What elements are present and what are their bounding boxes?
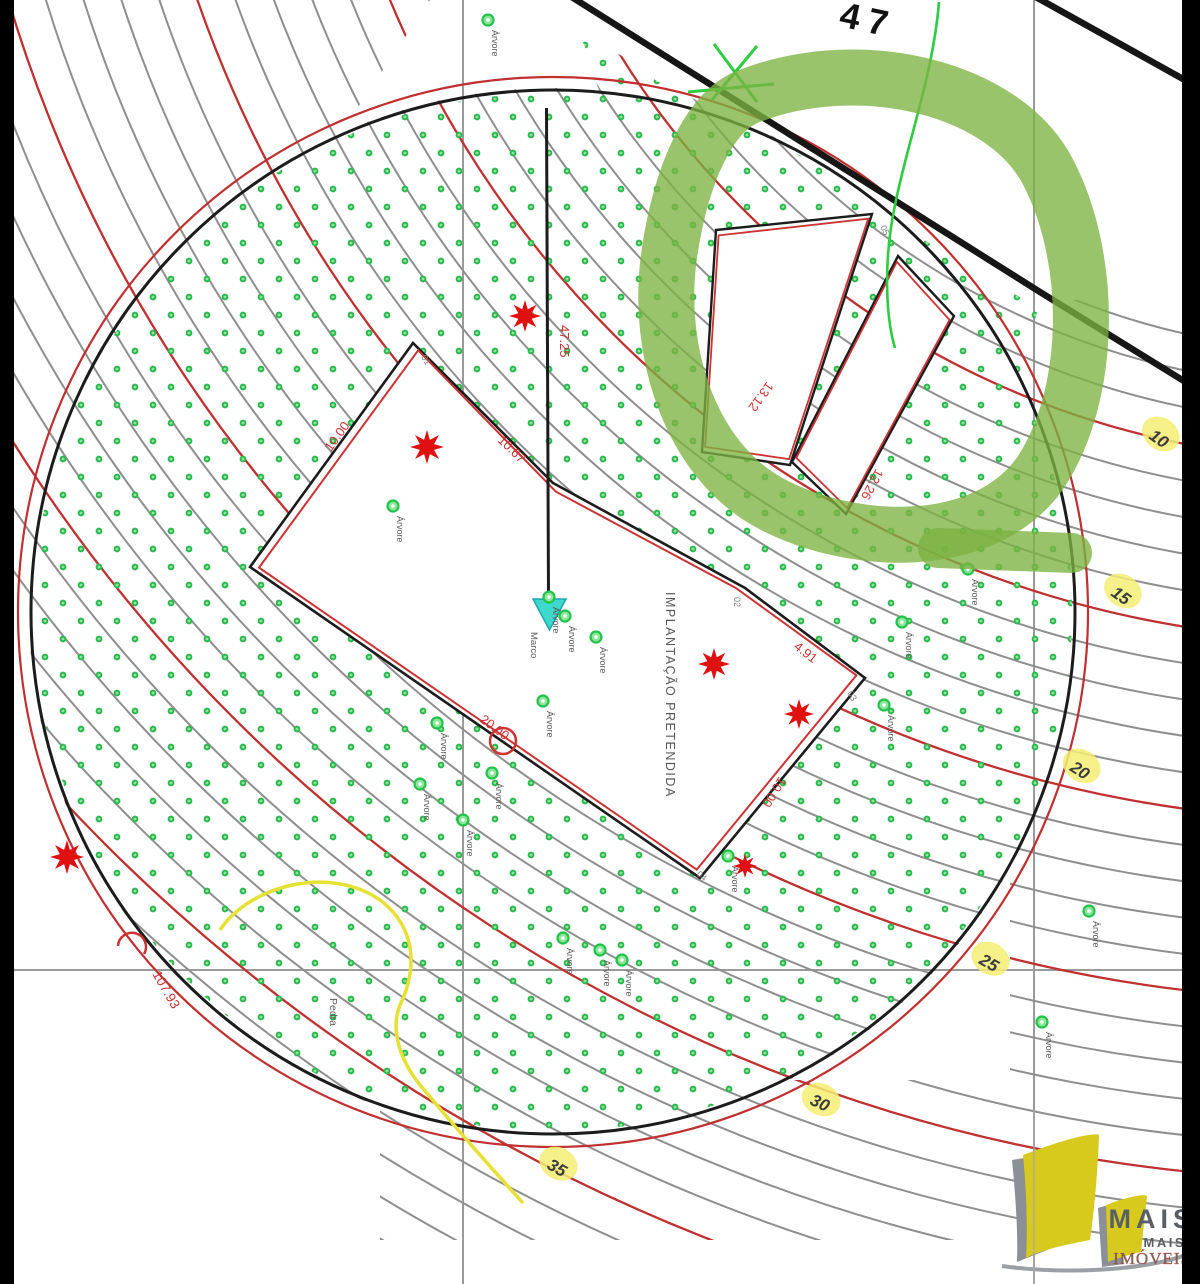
tree-label: Árvore bbox=[1044, 1032, 1054, 1059]
tree-symbol bbox=[483, 15, 494, 26]
tree-label: Árvore bbox=[439, 733, 449, 760]
tree-icon-core bbox=[598, 948, 602, 952]
tree-icon-core bbox=[541, 699, 545, 703]
tree-symbol bbox=[432, 718, 443, 729]
tree-icon-core bbox=[435, 721, 439, 725]
tree-label: Árvore bbox=[886, 715, 896, 742]
tree-symbol bbox=[538, 696, 549, 707]
building-label: IMPLANTAÇÃO PRETENDIDA bbox=[663, 592, 677, 798]
removed-tree-star bbox=[733, 854, 757, 878]
tree-symbol bbox=[591, 632, 602, 643]
removed-tree-star bbox=[410, 430, 444, 464]
logo-text-imoveis: IMÓVEIS bbox=[1113, 1249, 1191, 1268]
tree-symbol bbox=[415, 779, 426, 790]
tree-label: Árvore bbox=[565, 948, 575, 975]
tree-symbol bbox=[617, 955, 628, 966]
logo-text-brand-small: MAIS bbox=[1144, 1235, 1187, 1250]
removed-tree-star bbox=[50, 840, 84, 874]
tree-icon-core bbox=[418, 782, 422, 786]
dimension-label: 47.25 bbox=[557, 325, 572, 358]
tree-icon-core bbox=[620, 958, 624, 962]
tree-label: Árvore bbox=[730, 866, 740, 893]
survey-marker-label: Marco bbox=[528, 632, 539, 658]
corner-id-label: 02 bbox=[732, 597, 742, 607]
tree-label: Árvore bbox=[395, 516, 405, 543]
tree-icon-core bbox=[547, 595, 551, 599]
stone-area-label: Pedra bbox=[327, 998, 339, 1026]
tree-symbol bbox=[487, 768, 498, 779]
tree-label: Árvore bbox=[490, 30, 500, 57]
tree-icon-core bbox=[726, 854, 730, 858]
tree-label: Árvore bbox=[465, 830, 475, 857]
tree-label: Árvore bbox=[422, 794, 432, 821]
tree-label: Árvore bbox=[904, 632, 914, 659]
removed-tree-star bbox=[509, 300, 541, 332]
tree-icon-core bbox=[1087, 909, 1091, 913]
tree-symbol bbox=[458, 815, 469, 826]
tree-icon-core bbox=[391, 504, 395, 508]
tree-label: Árvore bbox=[624, 970, 634, 997]
tree-icon-core bbox=[490, 771, 494, 775]
left-border-bar bbox=[0, 0, 14, 1284]
tree-symbol bbox=[1037, 1017, 1048, 1028]
tree-symbol bbox=[560, 611, 571, 622]
tree-icon-core bbox=[1040, 1020, 1044, 1024]
highlighter-dash-annotation bbox=[938, 548, 1072, 553]
dimension-line bbox=[547, 108, 549, 600]
tree-symbol bbox=[388, 501, 399, 512]
tree-icon-core bbox=[561, 936, 565, 940]
tree-label: Árvore bbox=[567, 626, 577, 653]
tree-symbol bbox=[879, 700, 890, 711]
tree-symbol bbox=[1084, 906, 1095, 917]
tree-icon-core bbox=[563, 614, 567, 618]
tree-icon-core bbox=[594, 635, 598, 639]
tree-symbol bbox=[723, 851, 734, 862]
site-plan-drawing: ÁrvoreÁrvoreÁrvoreÁrvoreÁrvoreÁrvoreÁrvo… bbox=[0, 0, 1200, 1284]
tree-label: Árvore bbox=[545, 711, 555, 738]
tree-label: Árvore bbox=[494, 783, 504, 810]
tree-symbol bbox=[595, 945, 606, 956]
tree-label: Árvore bbox=[1091, 921, 1101, 948]
site-plan-document: ÁrvoreÁrvoreÁrvoreÁrvoreÁrvoreÁrvoreÁrvo… bbox=[0, 0, 1200, 1284]
tree-icon-core bbox=[486, 18, 490, 22]
tree-icon-core bbox=[461, 818, 465, 822]
tree-icon-core bbox=[882, 703, 886, 707]
tree-symbol bbox=[558, 933, 569, 944]
tree-label: Árvore bbox=[598, 647, 608, 674]
tree-symbol bbox=[544, 592, 555, 603]
tree-icon-core bbox=[900, 620, 904, 624]
tree-label: Árvore bbox=[970, 579, 980, 606]
tree-label: Árvore bbox=[551, 607, 561, 634]
removed-tree-star bbox=[784, 699, 814, 729]
tree-label: Árvore bbox=[602, 960, 612, 987]
tree-symbol bbox=[897, 617, 908, 628]
right-border-bar bbox=[1182, 0, 1200, 1284]
removed-tree-star bbox=[698, 648, 730, 680]
